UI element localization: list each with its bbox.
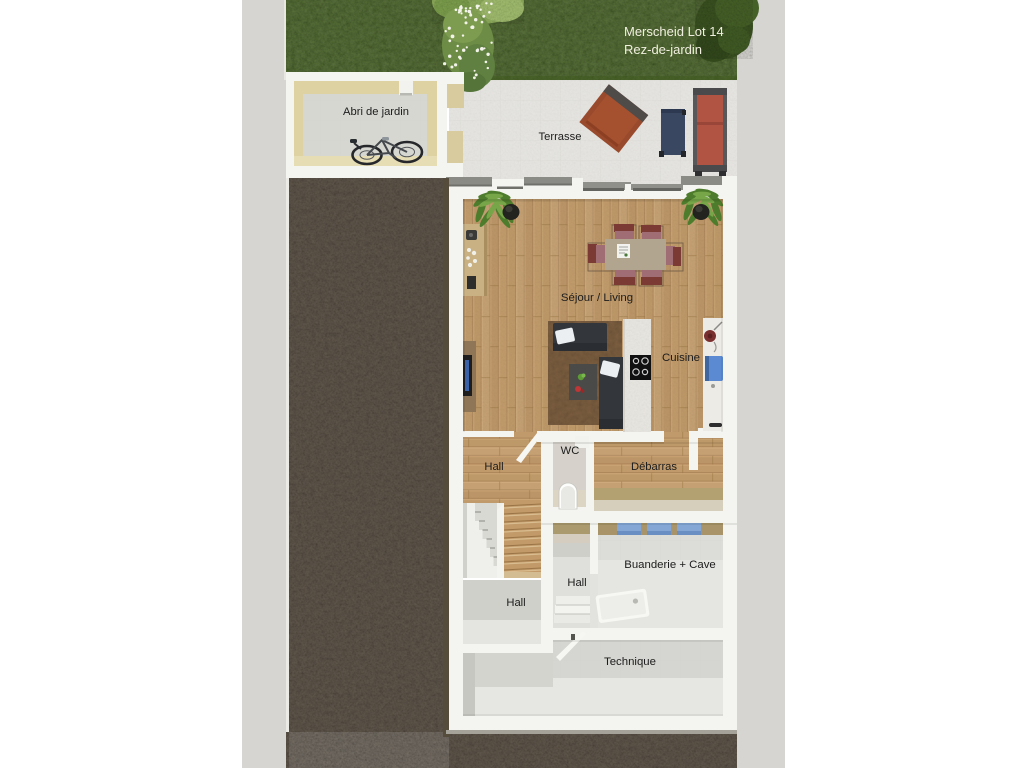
- svg-text:Débarras: Débarras: [631, 461, 677, 473]
- svg-text:Abri de jardin: Abri de jardin: [343, 106, 409, 118]
- svg-text:Séjour / Living: Séjour / Living: [561, 292, 633, 304]
- svg-text:Technique: Technique: [604, 656, 656, 668]
- svg-text:Terrasse: Terrasse: [539, 131, 582, 143]
- svg-text:Hall: Hall: [484, 461, 503, 473]
- svg-text:Hall: Hall: [567, 577, 586, 589]
- svg-text:WC: WC: [561, 445, 580, 457]
- svg-text:Cuisine: Cuisine: [662, 352, 700, 364]
- svg-text:Hall: Hall: [506, 597, 525, 609]
- svg-text:Buanderie + Cave: Buanderie + Cave: [624, 559, 716, 571]
- svg-text:Merscheid Lot 14: Merscheid Lot 14: [624, 24, 724, 39]
- svg-text:Rez-de-jardin: Rez-de-jardin: [624, 42, 702, 57]
